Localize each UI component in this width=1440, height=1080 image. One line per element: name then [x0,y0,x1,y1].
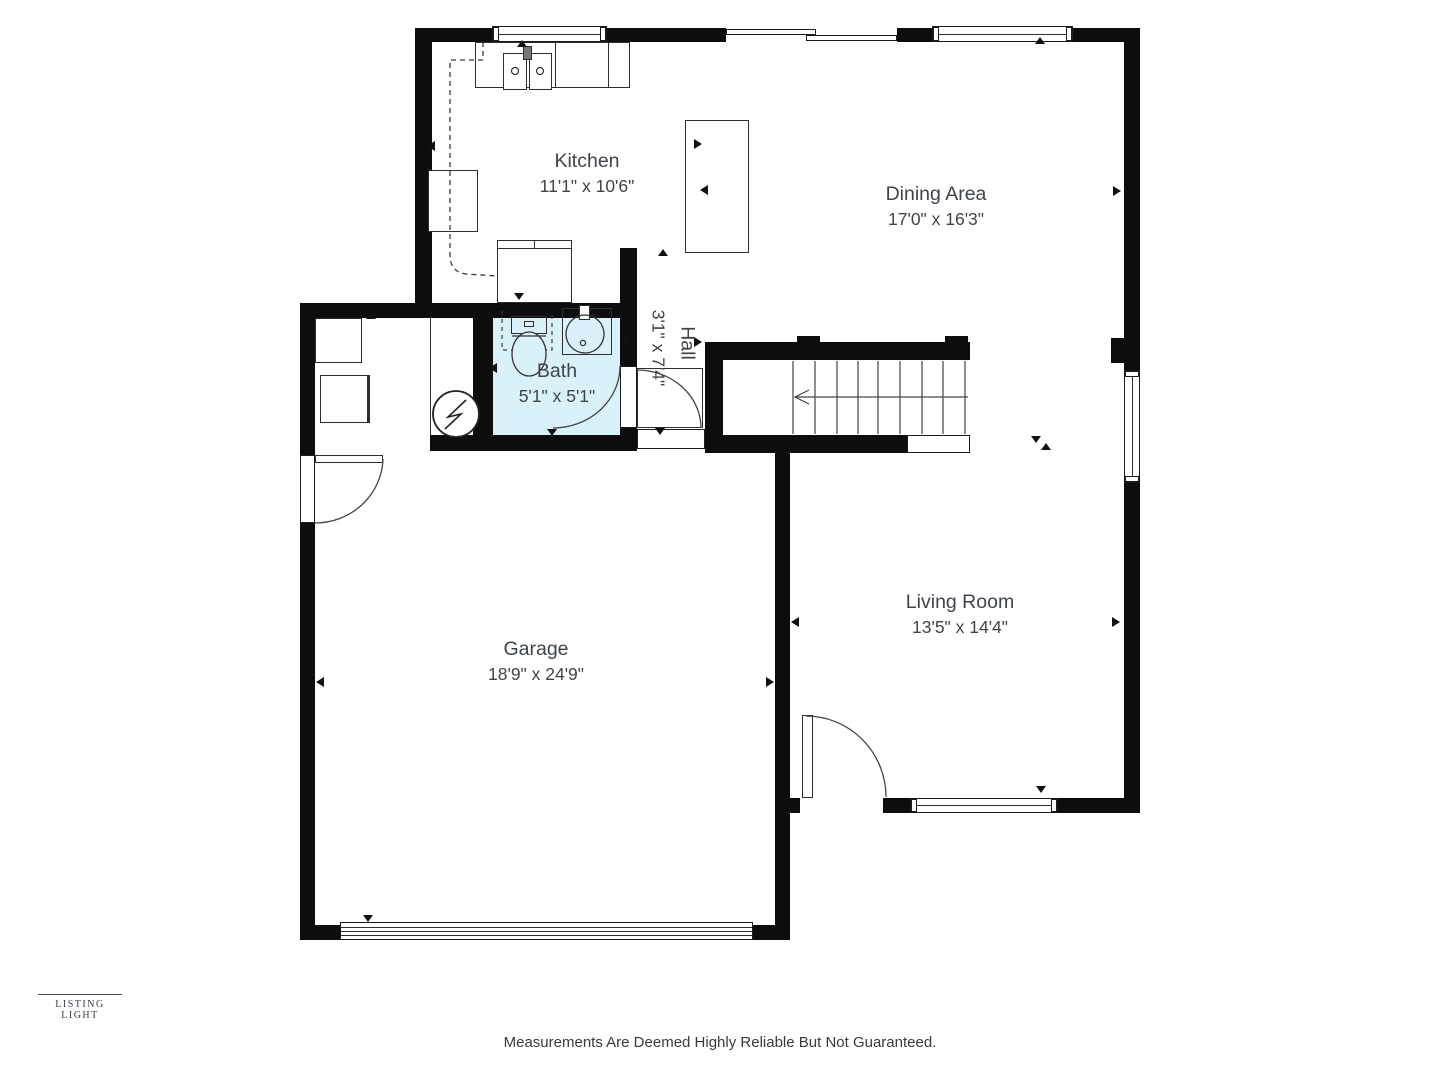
water-heater-bolt-icon [445,400,466,429]
kitchen-sink-basin-right [529,53,552,90]
floor-plan: Kitchen 11'1" x 10'6" Dining Area 17'0" … [0,0,1440,1080]
window-mullion [499,34,600,35]
kitchen-name: Kitchen [540,149,635,174]
kitchen-counter [475,42,630,88]
wall-right-upper [1124,28,1140,370]
bath-name: Bath [519,359,596,384]
window-right-wall [1124,370,1140,483]
garage-door-line [341,931,752,932]
refrigerator-icon [497,240,572,303]
dim-arrow-kitchen-window [517,40,527,47]
window-cap [1051,799,1057,812]
wall-top-b [607,28,726,42]
stair-direction-arrowhead [795,390,809,404]
dim-arrow-kitchen-left [427,141,435,151]
dim-arrow-island-left [700,185,708,195]
hall-name: Hall [675,326,700,360]
wall-living-bottom-c [1058,798,1140,813]
wall-bath-divider [473,303,493,450]
refrigerator-split-line [534,240,535,248]
dim-arrow-island-right [694,139,702,149]
living-label: Living Room 13'5" x 14'4" [906,590,1014,640]
dining-name: Dining Area [886,182,987,207]
laundry-appliance [320,375,370,423]
dim-arrow-living-right [1112,617,1120,627]
dim-arrow-dining-window [1035,37,1045,44]
disclaimer-text: Measurements Are Deemed Highly Reliable … [0,1034,1440,1051]
wall-bath-bottom [430,435,637,451]
wall-stair-top [705,342,970,360]
counter-divider [555,42,556,87]
stair-treads [793,361,965,434]
garage-door [340,922,753,940]
wall-left-lower [300,523,315,940]
stair-landing-notch [907,435,970,453]
bath-label: Bath 5'1" x 5'1" [519,359,596,409]
door-swing-living [806,716,886,797]
slider-panel-lower [806,35,897,41]
garage-door-line [341,927,752,928]
refrigerator-door-line [497,248,572,249]
counter-divider [608,42,609,87]
dim-arrow-garage-right [766,677,774,687]
dim-arrow-living-left [791,617,799,627]
dim-arrow-garage-top [366,312,376,319]
alcove-divider-line [430,318,431,435]
door-gap-garage-entry [300,455,315,523]
dim-arrow-hall-bottom [655,428,665,435]
dim-arrow-living-window [1036,786,1046,793]
window-dining [932,26,1073,42]
door-swing-garage-entry [315,459,383,523]
door-leaf-living [802,715,813,798]
dim-arrow-garage-bottom [363,915,373,922]
garage-door-line [341,935,752,936]
wall-right-lower [1124,483,1140,813]
door-threshold-hall [637,429,705,449]
wall-bath-right-upper [620,248,637,368]
dining-dims: 17'0" x 16'3" [886,207,987,232]
living-name: Living Room [906,590,1014,615]
window-kitchen [492,26,607,42]
kitchen-faucet-icon [523,46,532,60]
dim-arrow-bath-right [620,336,628,346]
kitchen-label: Kitchen 11'1" x 10'6" [540,149,635,199]
wall-top-c [897,28,932,42]
dim-arrow-kitchen-bottom [514,293,524,300]
garage-label: Garage 18'9" x 24'9" [488,637,584,687]
bath-faucet-icon [579,305,590,320]
door-leaf-garage-entry [315,455,383,463]
dim-arrow-bath-left [489,363,497,373]
window-mullion [939,34,1066,35]
garage-dims: 18'9" x 24'9" [488,662,584,687]
stove-icon [428,170,478,232]
slider-panel-upper [726,29,816,35]
window-mullion [917,805,1051,806]
window-cap [600,27,606,41]
window-mullion [1132,377,1133,476]
dining-label: Dining Area 17'0" x 16'3" [886,182,987,232]
kitchen-dims: 11'1" x 10'6" [540,174,635,199]
toilet-flush-button [524,321,534,327]
wall-stair-bottom [705,435,907,453]
dim-arrow-garage-left [316,677,324,687]
wall-left-upper [300,303,315,455]
window-cap [1066,27,1072,41]
wall-stair-stub-1 [797,336,820,344]
wall-living-bottom-a [790,798,800,813]
wall-right-stub [1111,338,1124,363]
dim-arrow-opening-down [1031,436,1041,443]
dim-arrow-hall-top [658,249,668,256]
closet-shelf [315,318,362,363]
garage-name: Garage [488,637,584,662]
bath-dims: 5'1" x 5'1" [519,384,596,409]
dim-arrow-opening-up [1041,443,1051,450]
wall-stair-stub-2 [945,336,968,344]
door-gap-bath [620,366,637,428]
dim-arrow-dining-right [1113,186,1121,196]
wall-garage-right [775,435,790,940]
window-cap [1125,476,1139,482]
wall-bottom-left-corner [300,925,340,940]
listing-light-logo: LISTING LIGHT [38,994,122,1021]
dim-arrow-bath-bottom [547,429,557,436]
window-living [910,798,1058,813]
living-dims: 13'5" x 14'4" [906,615,1014,640]
hall-dims: 3'1" x 7'4" [646,310,671,387]
wall-living-bottom-b [883,798,910,813]
